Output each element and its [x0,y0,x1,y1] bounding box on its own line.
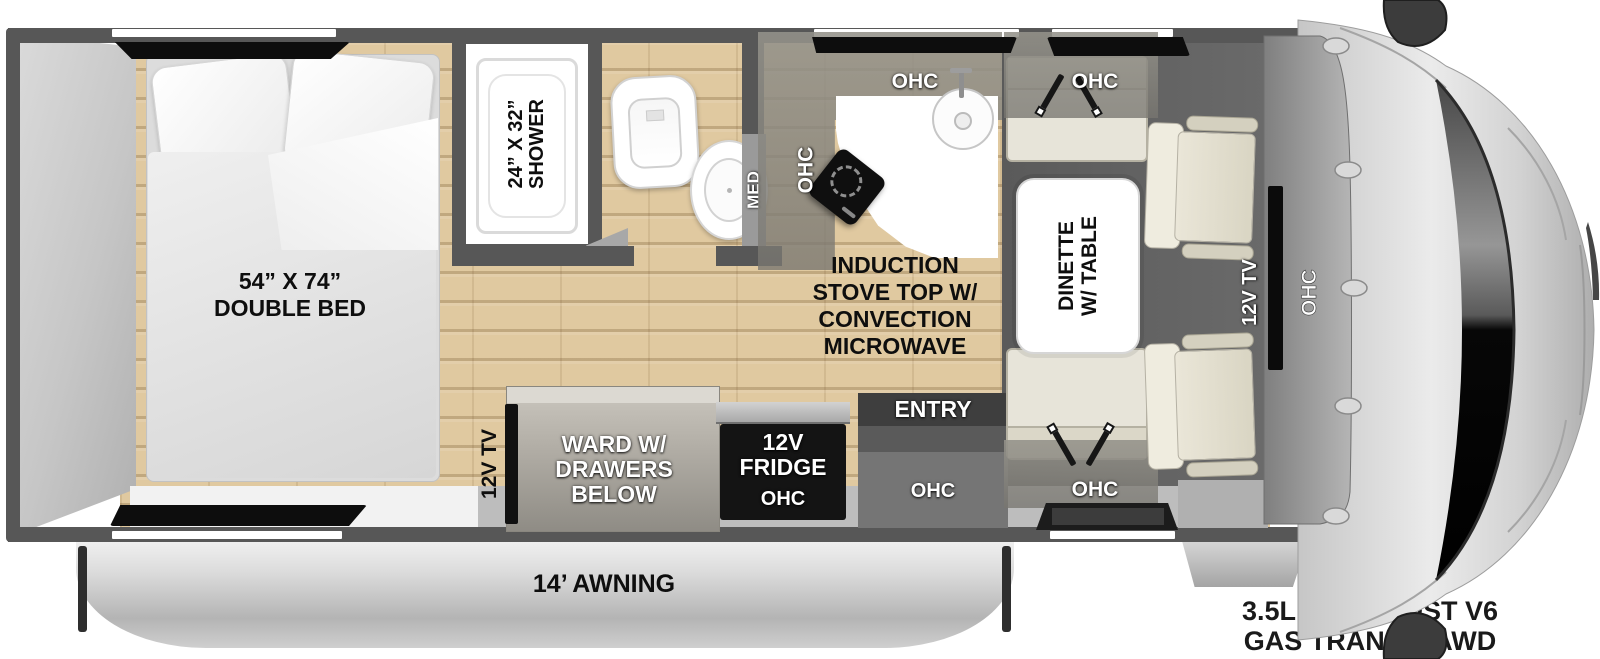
window-bed-bottom [112,531,342,539]
awning-label: 14’ AWNING [484,570,724,598]
entry-label-text: ENTRY [894,396,971,423]
toilet-bowl [627,97,683,170]
kitchen-ohc-label-side: OHC [794,136,818,204]
stove-label-line1: INDUCTION [790,252,1000,279]
clearance-clip [1323,38,1349,54]
wardrobe-label-line3: BELOW [516,482,712,507]
window-shade-kitchen [810,37,1017,53]
bed-label-line2: DOUBLE BED [168,295,412,322]
window-dinette-bottom [1050,531,1175,539]
dinette-table: DINETTE W/ TABLE [1016,178,1140,354]
window-shade-bed [110,42,350,59]
stove-label: INDUCTION STOVE TOP W/ CONVECTION MICROW… [790,252,1000,366]
wall-left [6,28,20,542]
cooktop-control-bar [841,206,856,219]
kitchen-sink-drain [954,112,972,130]
shower-label: 24” X 32” SHOWER [466,48,588,240]
bath-wall-bottom-left [452,246,634,266]
toilet-flush [646,110,665,122]
window-bed-top [112,29,336,37]
stove-label-line3: CONVECTION [790,306,1000,333]
rv-floorplan: 14’ AWNING 3.5L ECOBOOST V6 GAS TRANSIT … [0,0,1600,659]
awning-end-cap-right [1002,546,1011,632]
wardrobe-label-line2: DRAWERS [516,457,712,482]
shower-label-line1: 24” X 32” [506,99,527,189]
dinette-ohc-bottom-label: OHC [1060,478,1130,502]
cab-front: OHC [1240,0,1600,659]
clearance-clip [1335,398,1361,414]
stove-label-line4: MICROWAVE [790,333,1000,360]
window-shade-dinette [1047,37,1190,56]
bath-sink-drain [727,188,732,193]
fridge-label-line2: FRIDGE [722,455,844,480]
wardrobe-top-edge [507,387,719,403]
stove-label-line2: STOVE TOP W/ [790,279,1000,306]
fridge-label-line1: 12V [722,430,844,455]
tv-label-rear: 12V TV [476,414,504,514]
kitchen-faucet-handle [950,68,972,73]
wardrobe-label-line1: WARD W/ [516,432,712,457]
kitchen-ohc-label-top: OHC [880,70,950,94]
bed-label-line1: 54” X 74” [168,268,412,295]
fridge-top-band [716,402,850,424]
awning-end-cap-left [78,546,87,632]
tv-bar-front [1268,186,1283,370]
clearance-clip [1335,162,1361,178]
entry-ohc-label: OHC [898,480,968,504]
window-shade-bed-bottom [110,505,367,526]
dinette-ohc-top-label: OHC [1060,70,1130,94]
fridge-ohc-label: OHC [722,488,844,512]
cab-ohc-label: OHC [1298,269,1321,316]
clearance-clip [1323,508,1349,524]
entry-step-inner [1052,508,1164,525]
fridge-label: 12V FRIDGE [722,430,844,480]
shower-label-line2: SHOWER [527,99,548,189]
wardrobe-label: WARD W/ DRAWERS BELOW [516,432,712,508]
entry-header: ENTRY [858,393,1008,426]
rear-cap-panel [18,34,136,534]
cooktop-burner-ring [824,159,869,204]
toilet [609,74,701,190]
clearance-clip [1341,280,1367,296]
dinette-label-line1: DINETTE [1055,216,1078,316]
bed-label: 54” X 74” DOUBLE BED [168,268,412,326]
dinette-label-line2: W/ TABLE [1078,216,1101,316]
kitchen-faucet [959,72,964,98]
